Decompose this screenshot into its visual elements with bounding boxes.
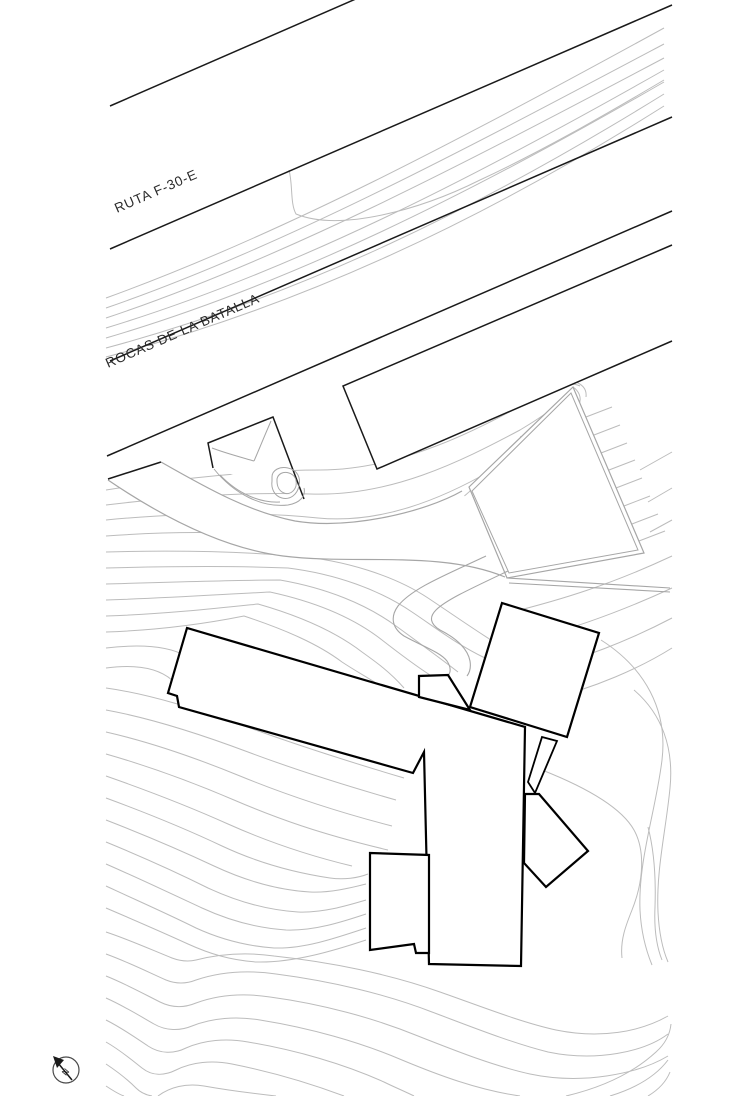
building-diamond-pavilion <box>524 794 588 887</box>
entry-courtyard <box>208 417 304 505</box>
road-edge-2 <box>110 5 672 249</box>
lower-road-platform <box>343 245 672 469</box>
north-arrow: N <box>53 1056 79 1083</box>
site-plan-canvas: RUTA F-30-E ROCAS DE LA BATALLA N <box>0 0 750 1096</box>
driveway-ramp <box>108 462 505 577</box>
site-plan-drawing: RUTA F-30-E ROCAS DE LA BATALLA N <box>0 0 750 1096</box>
north-letter: N <box>60 1066 72 1077</box>
road-edge-1 <box>110 0 358 106</box>
building-connector <box>528 737 557 793</box>
building-annex <box>370 853 429 953</box>
building-complex <box>168 603 599 966</box>
building-main-bar-and-tower <box>168 628 525 966</box>
road-label-ruta-f30e: RUTA F-30-E <box>112 167 199 216</box>
